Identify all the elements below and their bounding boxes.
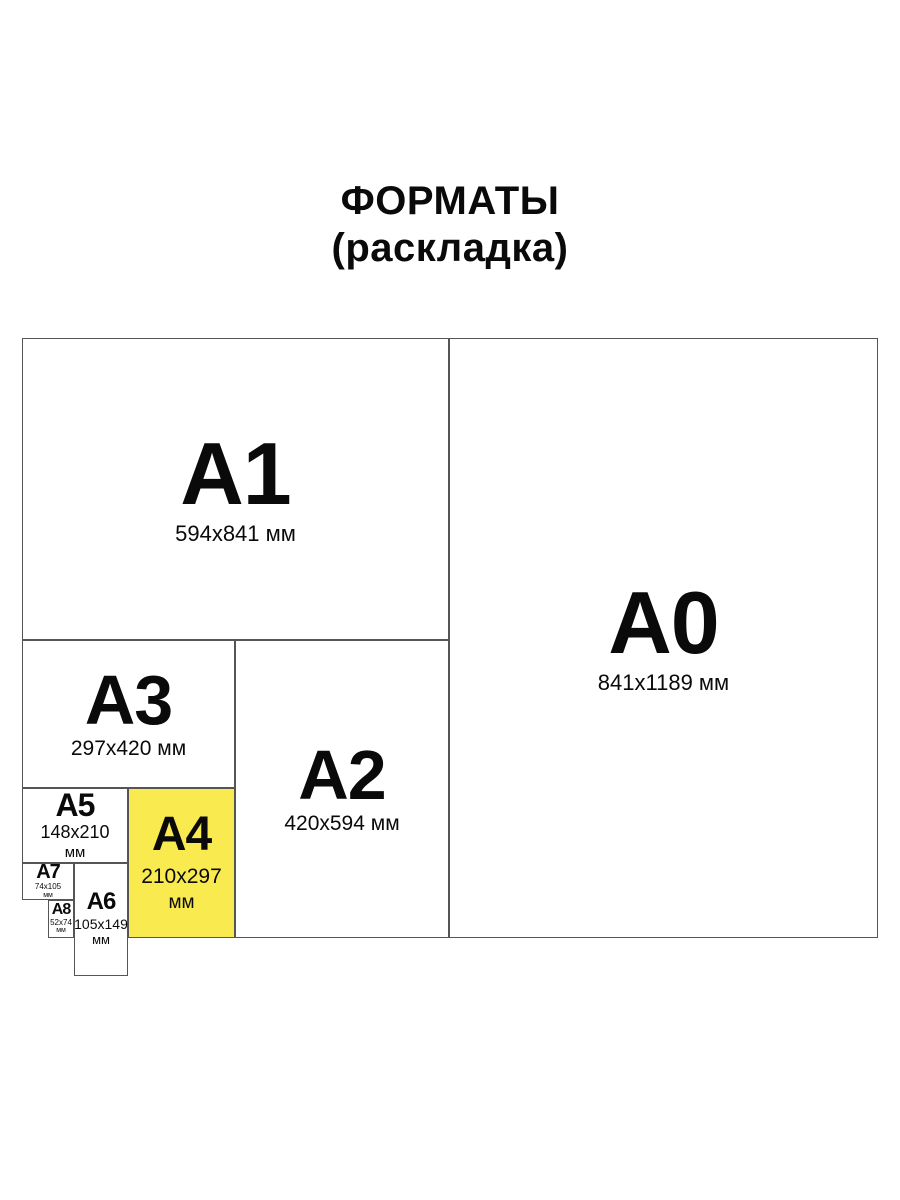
format-size-a3: 297x420 мм [71, 737, 186, 761]
format-size-a5: 148x210 [40, 822, 109, 843]
page-title: ФОРМАТЫ (раскладка) [0, 178, 900, 272]
format-label-a8: A8 [52, 903, 70, 917]
paper-formats-diagram: A1 594x841 мм A0 841x1189 мм A3 297x420 … [22, 338, 878, 938]
page: ФОРМАТЫ (раскладка) A1 594x841 мм A0 841… [0, 0, 900, 1200]
format-box-a1: A1 594x841 мм [22, 338, 449, 640]
format-unit-a4: мм [168, 892, 194, 914]
title-line-2: (раскладка) [0, 225, 900, 272]
format-box-a4-highlighted: A4 210x297 мм [128, 788, 235, 938]
format-size-a2: 420x594 мм [284, 812, 399, 836]
format-size-a6: 105x149 [74, 916, 128, 932]
format-unit-a7: мм [43, 892, 53, 900]
format-size-a7: 74x105 [35, 882, 61, 891]
format-box-a6: A6 105x149 мм [74, 863, 128, 976]
format-label-a1: A1 [180, 432, 291, 516]
title-line-1: ФОРМАТЫ [0, 178, 900, 225]
format-label-a7: A7 [36, 863, 60, 881]
format-box-a2: A2 420x594 мм [235, 640, 449, 938]
format-label-a4: A4 [152, 812, 211, 858]
format-label-a3: A3 [85, 667, 172, 734]
format-label-a0: A0 [608, 581, 719, 665]
format-box-a7: A7 74x105 мм [22, 863, 74, 900]
format-unit-a6: мм [92, 933, 110, 948]
format-box-a8: A8 52x74 мм [48, 900, 74, 938]
format-unit-a8: мм [56, 927, 66, 935]
format-size-a1: 594x841 мм [175, 521, 296, 546]
format-label-a6: A6 [87, 891, 116, 914]
format-label-a5: A5 [56, 790, 95, 820]
format-box-a3: A3 297x420 мм [22, 640, 235, 788]
format-unit-a5: мм [65, 844, 86, 861]
format-box-a5: A5 148x210 мм [22, 788, 128, 863]
format-size-a4: 210x297 [141, 865, 222, 889]
format-size-a8: 52x74 [50, 918, 72, 927]
format-box-a0: A0 841x1189 мм [449, 338, 878, 938]
format-label-a2: A2 [298, 742, 385, 809]
format-size-a0: 841x1189 мм [598, 670, 729, 695]
